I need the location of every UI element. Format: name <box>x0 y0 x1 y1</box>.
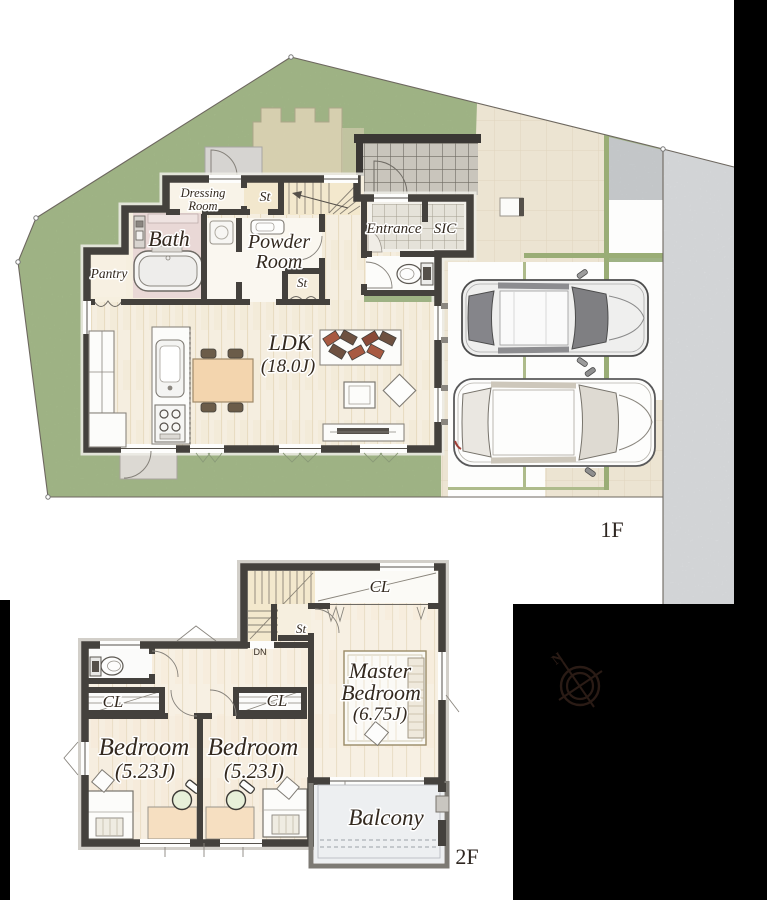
svg-text:Bedroom: Bedroom <box>341 680 421 705</box>
svg-text:SIC: SIC <box>434 221 457 237</box>
svg-text:Entrance: Entrance <box>366 221 422 237</box>
svg-text:St: St <box>297 275 308 290</box>
svg-text:Bedroom: Bedroom <box>208 734 299 761</box>
svg-text:(18.0J): (18.0J) <box>261 356 315 377</box>
svg-text:2F: 2F <box>455 844 478 869</box>
svg-text:Room: Room <box>187 199 217 213</box>
svg-text:(6.75J): (6.75J) <box>353 704 407 725</box>
svg-text:Powder: Powder <box>247 231 310 253</box>
svg-text:Balcony: Balcony <box>348 805 424 830</box>
svg-text:CL: CL <box>103 692 124 711</box>
svg-text:(5.23J): (5.23J) <box>224 759 284 783</box>
svg-text:Pantry: Pantry <box>90 266 128 281</box>
svg-text:Bedroom: Bedroom <box>99 734 190 761</box>
svg-text:Dressing: Dressing <box>180 186 226 200</box>
svg-text:1F: 1F <box>600 517 623 542</box>
svg-text:DN: DN <box>254 647 267 657</box>
svg-text:Room: Room <box>255 251 303 273</box>
svg-text:St: St <box>260 190 272 205</box>
svg-text:LDK: LDK <box>268 330 313 355</box>
svg-text:CL: CL <box>267 691 288 710</box>
svg-text:(5.23J): (5.23J) <box>115 759 175 783</box>
svg-text:Bath: Bath <box>148 226 190 251</box>
svg-text:St: St <box>296 621 307 636</box>
svg-text:CL: CL <box>370 577 391 596</box>
